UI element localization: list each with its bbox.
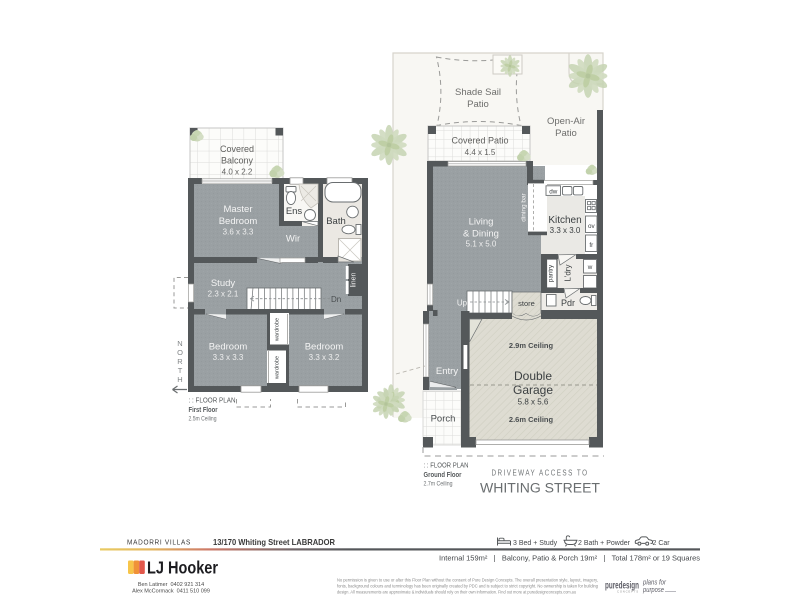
svg-text:purpose: purpose <box>642 587 664 594</box>
svg-text:Covered: Covered <box>220 144 254 154</box>
svg-text:plans for: plans for <box>642 580 666 587</box>
svg-text:T: T <box>178 366 183 375</box>
svg-text:dining bar: dining bar <box>521 192 528 221</box>
svg-text:fonts, background colours and: fonts, background colours and terminolog… <box>337 584 598 590</box>
svg-text:Covered Patio: Covered Patio <box>451 136 508 146</box>
svg-text:O: O <box>177 348 183 357</box>
svg-text:Bath: Bath <box>326 216 346 227</box>
svg-text:Bedroom: Bedroom <box>305 342 344 353</box>
svg-text:Internal 159m² | Balcony,: Internal 159m² | Balcony, Patio & Porch … <box>439 554 700 563</box>
svg-text:dw: dw <box>549 188 558 195</box>
svg-text:4.4 x 1.5: 4.4 x 1.5 <box>465 148 496 157</box>
svg-text:Porch: Porch <box>431 414 456 425</box>
svg-text:L’dry: L’dry <box>564 265 573 282</box>
svg-text:Ground Floor: Ground Floor <box>424 472 462 479</box>
svg-text:& Dining: & Dining <box>463 229 499 240</box>
svg-text:2.6m Ceiling: 2.6m Ceiling <box>509 415 554 424</box>
svg-text:2.7m Ceiling: 2.7m Ceiling <box>424 482 453 488</box>
svg-text:13/170 Whiting Street LABRADOR: 13/170 Whiting Street LABRADOR <box>213 538 335 547</box>
svg-text:No permission is given to use: No permission is given to use or alter t… <box>337 578 598 584</box>
svg-text:H: H <box>177 375 182 384</box>
svg-text:Shade Sail: Shade Sail <box>455 87 501 98</box>
svg-text:5.8 x 5.6: 5.8 x 5.6 <box>518 398 549 407</box>
svg-text:WHITING STREET: WHITING STREET <box>480 481 600 496</box>
svg-text:DRIVEWAY ACCESS TO: DRIVEWAY ACCESS TO <box>492 469 589 478</box>
svg-text:fr: fr <box>589 242 593 249</box>
svg-text:Kitchen: Kitchen <box>548 215 581 226</box>
svg-text:Master: Master <box>223 204 252 215</box>
svg-text:wardrobe: wardrobe <box>275 356 281 380</box>
svg-text:linen: linen <box>351 273 358 288</box>
svg-text:4.0 x 2.2: 4.0 x 2.2 <box>222 168 253 177</box>
svg-text:Alex McCormack 0411 510 099: Alex McCormack 0411 510 099 <box>132 589 210 595</box>
svg-text:ov: ov <box>588 223 596 230</box>
svg-text:2.5m Ceiling: 2.5m Ceiling <box>189 417 217 423</box>
svg-text:3.3 x 3.0: 3.3 x 3.0 <box>550 226 581 235</box>
svg-text:Double: Double <box>514 369 552 383</box>
svg-text:Patio: Patio <box>467 99 489 110</box>
svg-text:2 Car: 2 Car <box>653 540 671 547</box>
svg-text:3.3 x 3.3: 3.3 x 3.3 <box>213 353 244 362</box>
svg-text:LJ Hooker: LJ Hooker <box>147 558 218 578</box>
svg-text:Ben Latimer 0402 921 314: Ben Latimer 0402 921 314 <box>138 582 204 588</box>
svg-text:Patio: Patio <box>555 128 577 139</box>
svg-text:wardrobe: wardrobe <box>275 318 281 342</box>
svg-text:Up: Up <box>457 299 468 308</box>
svg-text:: : FLOOR PLAN: : : FLOOR PLAN <box>424 463 469 470</box>
svg-text:N: N <box>177 339 182 348</box>
svg-text:3.6 x 3.3: 3.6 x 3.3 <box>223 228 254 237</box>
svg-text:store: store <box>518 299 535 308</box>
svg-text:3 Bed + Study: 3 Bed + Study <box>513 540 558 547</box>
svg-text:2.9m Ceiling: 2.9m Ceiling <box>509 341 554 350</box>
svg-text:pantry: pantry <box>547 264 554 282</box>
svg-text:Wir: Wir <box>286 234 300 245</box>
svg-text:Garage: Garage <box>513 383 553 397</box>
svg-text:design. All measurements are a: design. All measurements are approximate… <box>337 590 576 596</box>
svg-text:: : FLOOR PLAN: : : FLOOR PLAN <box>189 398 236 405</box>
svg-text:Bedroom: Bedroom <box>219 216 258 227</box>
svg-text:CONCEPTS: CONCEPTS <box>617 590 639 594</box>
svg-text:First Floor: First Floor <box>189 407 218 414</box>
svg-text:R: R <box>177 357 183 366</box>
svg-text:Study: Study <box>211 278 236 289</box>
svg-text:3.3 x 3.2: 3.3 x 3.2 <box>309 353 340 362</box>
svg-text:2.3 x 2.1: 2.3 x 2.1 <box>208 290 239 299</box>
svg-text:Entry: Entry <box>436 366 458 377</box>
svg-text:Open-Air: Open-Air <box>547 116 585 127</box>
svg-text:Bedroom: Bedroom <box>209 342 248 353</box>
svg-text:Ens: Ens <box>286 206 303 217</box>
svg-text:5.1 x 5.0: 5.1 x 5.0 <box>466 240 497 249</box>
svg-text:Dn: Dn <box>331 295 341 304</box>
svg-text:Living: Living <box>469 217 494 228</box>
svg-text:Pdr: Pdr <box>561 298 575 308</box>
svg-text:w: w <box>587 264 593 271</box>
svg-text:2 Bath + Powder: 2 Bath + Powder <box>578 540 631 547</box>
svg-text:Balcony: Balcony <box>221 156 254 166</box>
svg-text:MADORRI VILLAS: MADORRI VILLAS <box>127 538 191 547</box>
